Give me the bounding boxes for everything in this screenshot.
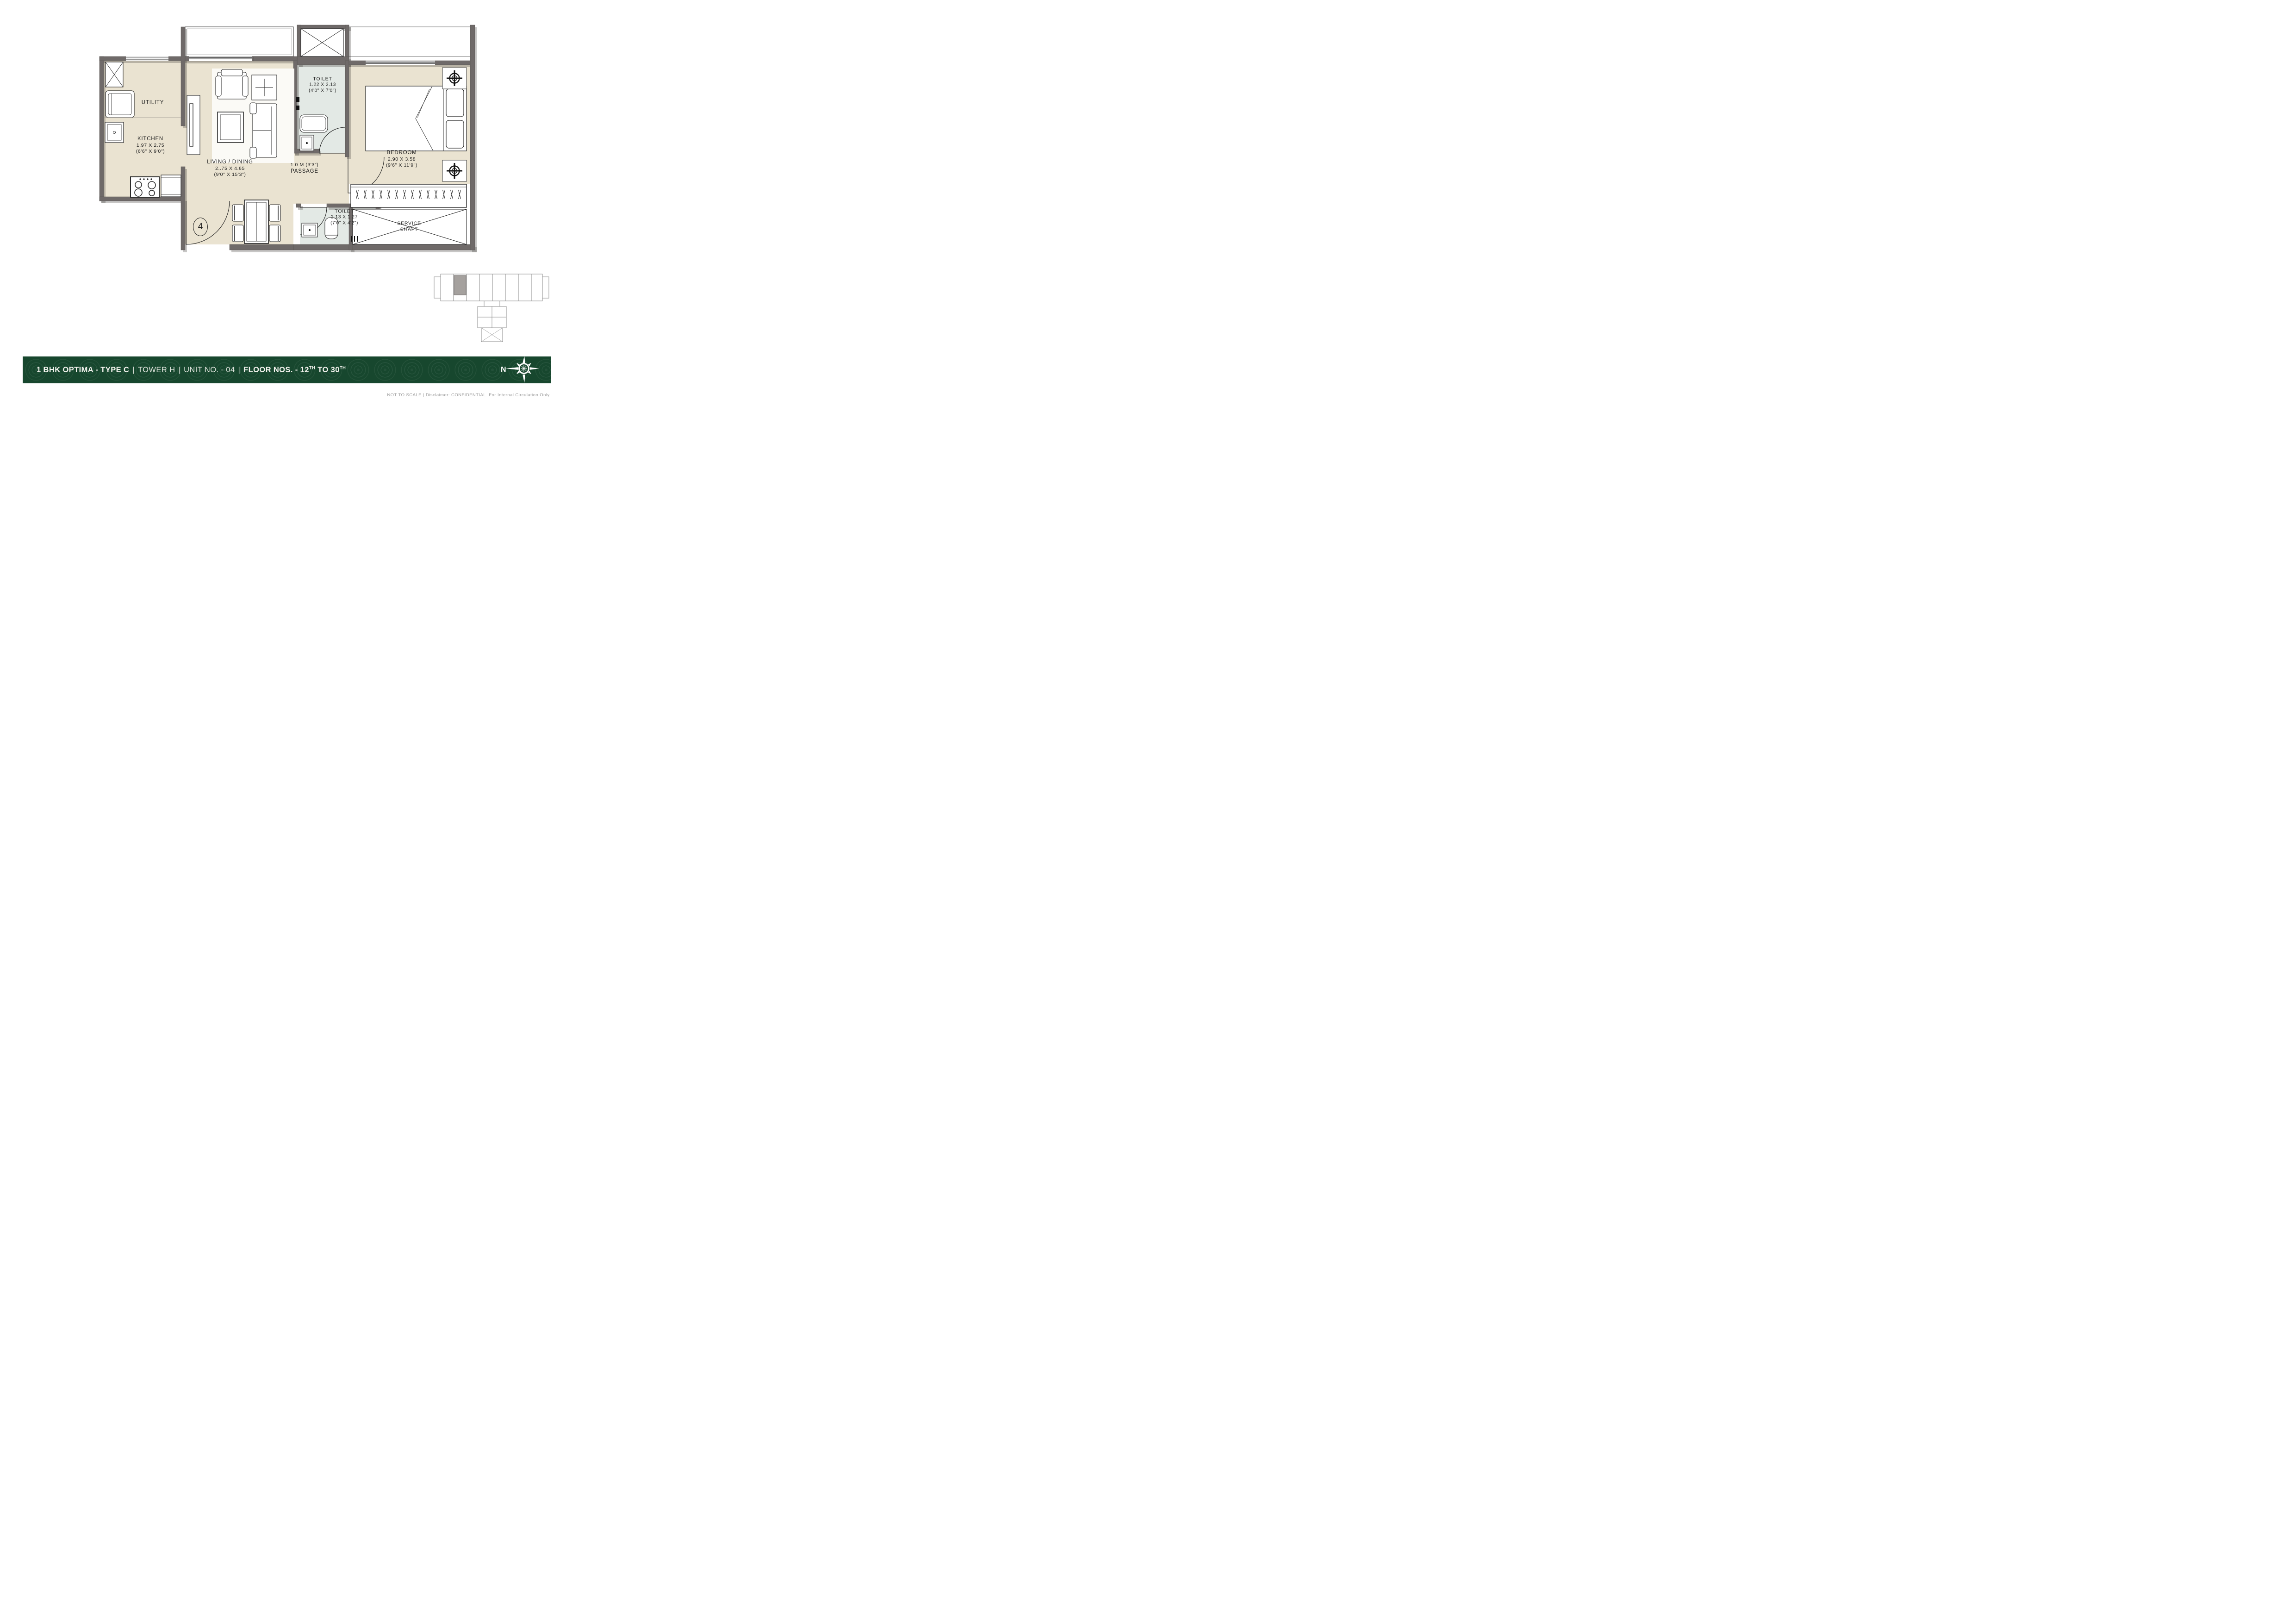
pillow (446, 120, 464, 148)
coffee-table (218, 112, 243, 143)
dining-chair (269, 225, 280, 242)
deck (185, 27, 293, 56)
compass-icon: N (497, 356, 543, 383)
unit-number-badge: 4 (193, 218, 208, 236)
room-label-bedroom: BEDROOM 2.90 X 3.58 (9'6" X 11'9") (386, 150, 417, 169)
tap-icon (296, 106, 299, 110)
dining-chair (232, 205, 243, 221)
key-plan-highlight-unit (454, 275, 466, 295)
room-label-living-dining: LIVING / DINING 2..75 X 4.65 (9'0" X 15'… (207, 159, 253, 178)
bedroom-furniture (351, 68, 467, 207)
tv-unit (187, 95, 200, 155)
wardrobe (351, 184, 467, 207)
tap-icon (296, 97, 299, 102)
key-plan (434, 274, 549, 342)
dining-chair (232, 225, 243, 242)
floor-plan-page: UTILITY KITCHEN 1.97 X 2.75 (6'6" X 9'0"… (0, 0, 574, 406)
footer-title: 1 BHK OPTIMA - TYPE C|TOWER H|UNIT NO. -… (23, 366, 346, 375)
open-area (349, 27, 470, 56)
dining-chair (269, 205, 280, 221)
compass-north-label: N (501, 366, 506, 374)
lift-shaft (301, 29, 343, 56)
floor-passage (293, 153, 349, 204)
toilet1-bathtub (300, 115, 328, 132)
room-label-utility: UTILITY (142, 100, 164, 106)
pillow (446, 89, 464, 117)
utility-duct (106, 62, 123, 87)
window-living (189, 56, 252, 61)
washing-machine (106, 91, 134, 118)
toilet1-washbasin (300, 135, 314, 151)
side-table (252, 75, 277, 100)
fan-box-top (442, 68, 467, 89)
window-bedroom (366, 61, 435, 65)
stove (131, 177, 159, 197)
room-label-toilet-1: TOILET 1.22 X 2.13 (4'0" X 7'0") (309, 76, 336, 94)
sofa (250, 103, 277, 158)
room-label-kitchen: KITCHEN 1.97 X 2.75 (6'6" X 9'0") (136, 136, 165, 155)
disclaimer-text: NOT TO SCALE | Disclaimer: CONFIDENTIAL.… (387, 393, 551, 398)
kitchen-sink (105, 122, 124, 143)
fan-box-bottom (442, 160, 467, 181)
armchair (216, 69, 248, 99)
window-utility (126, 56, 168, 61)
footer-bar: 1 BHK OPTIMA - TYPE C|TOWER H|UNIT NO. -… (23, 356, 551, 383)
bed (366, 86, 467, 151)
floor-plan-drawing (0, 0, 574, 406)
room-label-toilet-2: TOILET 2.13 X 1.27 (7'0" X 4'2") (330, 208, 358, 226)
room-label-service-shaft: SERVICE SHAFT (397, 221, 421, 233)
kitchen-counter (161, 175, 181, 197)
room-label-passage: 1.0 M (3'3") PASSAGE (291, 162, 319, 175)
toilet2-washbasin (302, 223, 317, 237)
